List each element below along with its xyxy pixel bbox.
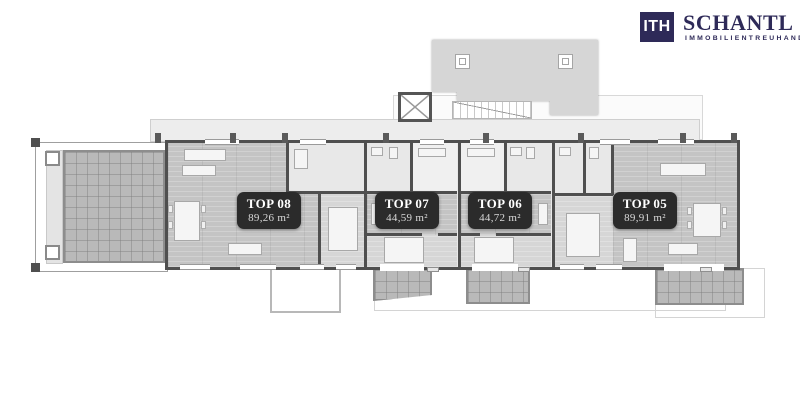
unit-badge-top-05[interactable]: TOP 05 89,91 m² bbox=[613, 192, 677, 229]
balcony-top-08 bbox=[270, 268, 341, 313]
unit-label: TOP 08 bbox=[237, 196, 301, 212]
window bbox=[300, 139, 326, 145]
kitchen-island bbox=[182, 165, 216, 176]
pilaster bbox=[731, 133, 737, 143]
chair bbox=[201, 205, 206, 213]
unit-badge-top-08[interactable]: TOP 08 89,26 m² bbox=[237, 192, 301, 229]
interior-wall bbox=[611, 143, 614, 195]
skylight-icon bbox=[558, 54, 573, 69]
column-marker bbox=[31, 138, 40, 147]
party-wall bbox=[552, 143, 555, 267]
pilaster bbox=[483, 133, 489, 143]
bath-fixture bbox=[371, 147, 383, 156]
unit-badge-top-07[interactable]: TOP 07 44,59 m² bbox=[375, 192, 439, 229]
kitchen-counter bbox=[184, 149, 226, 161]
ith-logo-icon: ITH bbox=[640, 12, 674, 42]
bed bbox=[566, 213, 600, 257]
window bbox=[600, 139, 630, 145]
floor-plan-canvas: TOP 08 89,26 m² TOP 07 44,59 m² TOP 06 4… bbox=[0, 0, 800, 417]
sofa bbox=[228, 243, 262, 255]
bath-fixture bbox=[510, 147, 522, 156]
balcony-top-06 bbox=[466, 268, 530, 304]
chair bbox=[722, 207, 727, 215]
wardrobe bbox=[467, 148, 495, 157]
window bbox=[336, 264, 356, 270]
unit-label: TOP 05 bbox=[613, 196, 677, 212]
balcony-door bbox=[380, 264, 424, 271]
kitchen-island bbox=[660, 163, 706, 176]
window bbox=[420, 139, 444, 145]
interior-wall bbox=[504, 143, 507, 193]
column-marker bbox=[31, 263, 40, 272]
dining-table bbox=[174, 201, 200, 241]
pilaster bbox=[282, 133, 288, 143]
sideboard bbox=[668, 243, 698, 255]
threshold bbox=[518, 267, 530, 272]
wardrobe bbox=[294, 149, 308, 169]
window bbox=[240, 264, 276, 270]
interior-wall bbox=[286, 143, 289, 193]
chair bbox=[168, 221, 173, 229]
logo-subtitle-text: IMMOBILIENTREUHAND bbox=[685, 35, 800, 42]
elevator-icon bbox=[398, 92, 432, 122]
bath-fixture bbox=[389, 147, 398, 159]
terrace-post bbox=[45, 245, 60, 260]
terrace-top-05 bbox=[655, 268, 744, 305]
interior-wall bbox=[555, 193, 613, 196]
wardrobe bbox=[418, 148, 446, 157]
pilaster bbox=[230, 133, 236, 143]
window bbox=[560, 264, 584, 270]
interior-wall bbox=[410, 143, 413, 193]
window bbox=[180, 264, 210, 270]
closet bbox=[538, 203, 548, 225]
logo-monogram: ITH bbox=[643, 18, 670, 36]
unit-badge-top-06[interactable]: TOP 06 44,72 m² bbox=[468, 192, 532, 229]
pilaster bbox=[155, 133, 161, 143]
bed bbox=[474, 237, 514, 263]
chair bbox=[722, 221, 727, 229]
bed bbox=[384, 237, 424, 263]
unit-area: 89,26 m² bbox=[237, 212, 301, 224]
interior-wall bbox=[438, 233, 457, 236]
interior-wall bbox=[318, 193, 321, 267]
terrace-top-08 bbox=[63, 150, 165, 263]
threshold bbox=[427, 267, 439, 272]
terrace-post bbox=[45, 151, 60, 166]
interior-wall bbox=[496, 233, 551, 236]
window bbox=[658, 139, 694, 145]
pilaster bbox=[680, 133, 686, 143]
interior-wall bbox=[583, 143, 586, 193]
chair bbox=[687, 207, 692, 215]
interior-wall bbox=[288, 191, 365, 194]
wardrobe bbox=[623, 238, 637, 262]
chair bbox=[168, 205, 173, 213]
skylight-icon bbox=[455, 54, 470, 69]
logo-brand-text: SCHANTL bbox=[683, 10, 794, 36]
balcony-door bbox=[472, 264, 518, 271]
bed bbox=[328, 207, 358, 251]
party-wall bbox=[364, 143, 367, 267]
interior-wall bbox=[367, 233, 422, 236]
unit-area: 44,72 m² bbox=[468, 212, 532, 224]
staircase-icon bbox=[452, 101, 532, 119]
bath-fixture bbox=[559, 147, 571, 156]
window bbox=[470, 139, 494, 145]
unit-area: 89,91 m² bbox=[613, 212, 677, 224]
pilaster bbox=[383, 133, 389, 143]
unit-label: TOP 06 bbox=[468, 196, 532, 212]
terrace-door bbox=[664, 264, 724, 271]
party-wall bbox=[458, 143, 461, 267]
unit-label: TOP 07 bbox=[375, 196, 439, 212]
bath-fixture bbox=[589, 147, 599, 159]
window bbox=[300, 264, 324, 270]
pilaster bbox=[578, 133, 584, 143]
dining-table bbox=[693, 203, 721, 237]
threshold bbox=[700, 267, 712, 272]
chair bbox=[201, 221, 206, 229]
interior-wall bbox=[461, 233, 480, 236]
bath-fixture bbox=[526, 147, 535, 159]
unit-area: 44,59 m² bbox=[375, 212, 439, 224]
window bbox=[596, 264, 622, 270]
chair bbox=[687, 221, 692, 229]
